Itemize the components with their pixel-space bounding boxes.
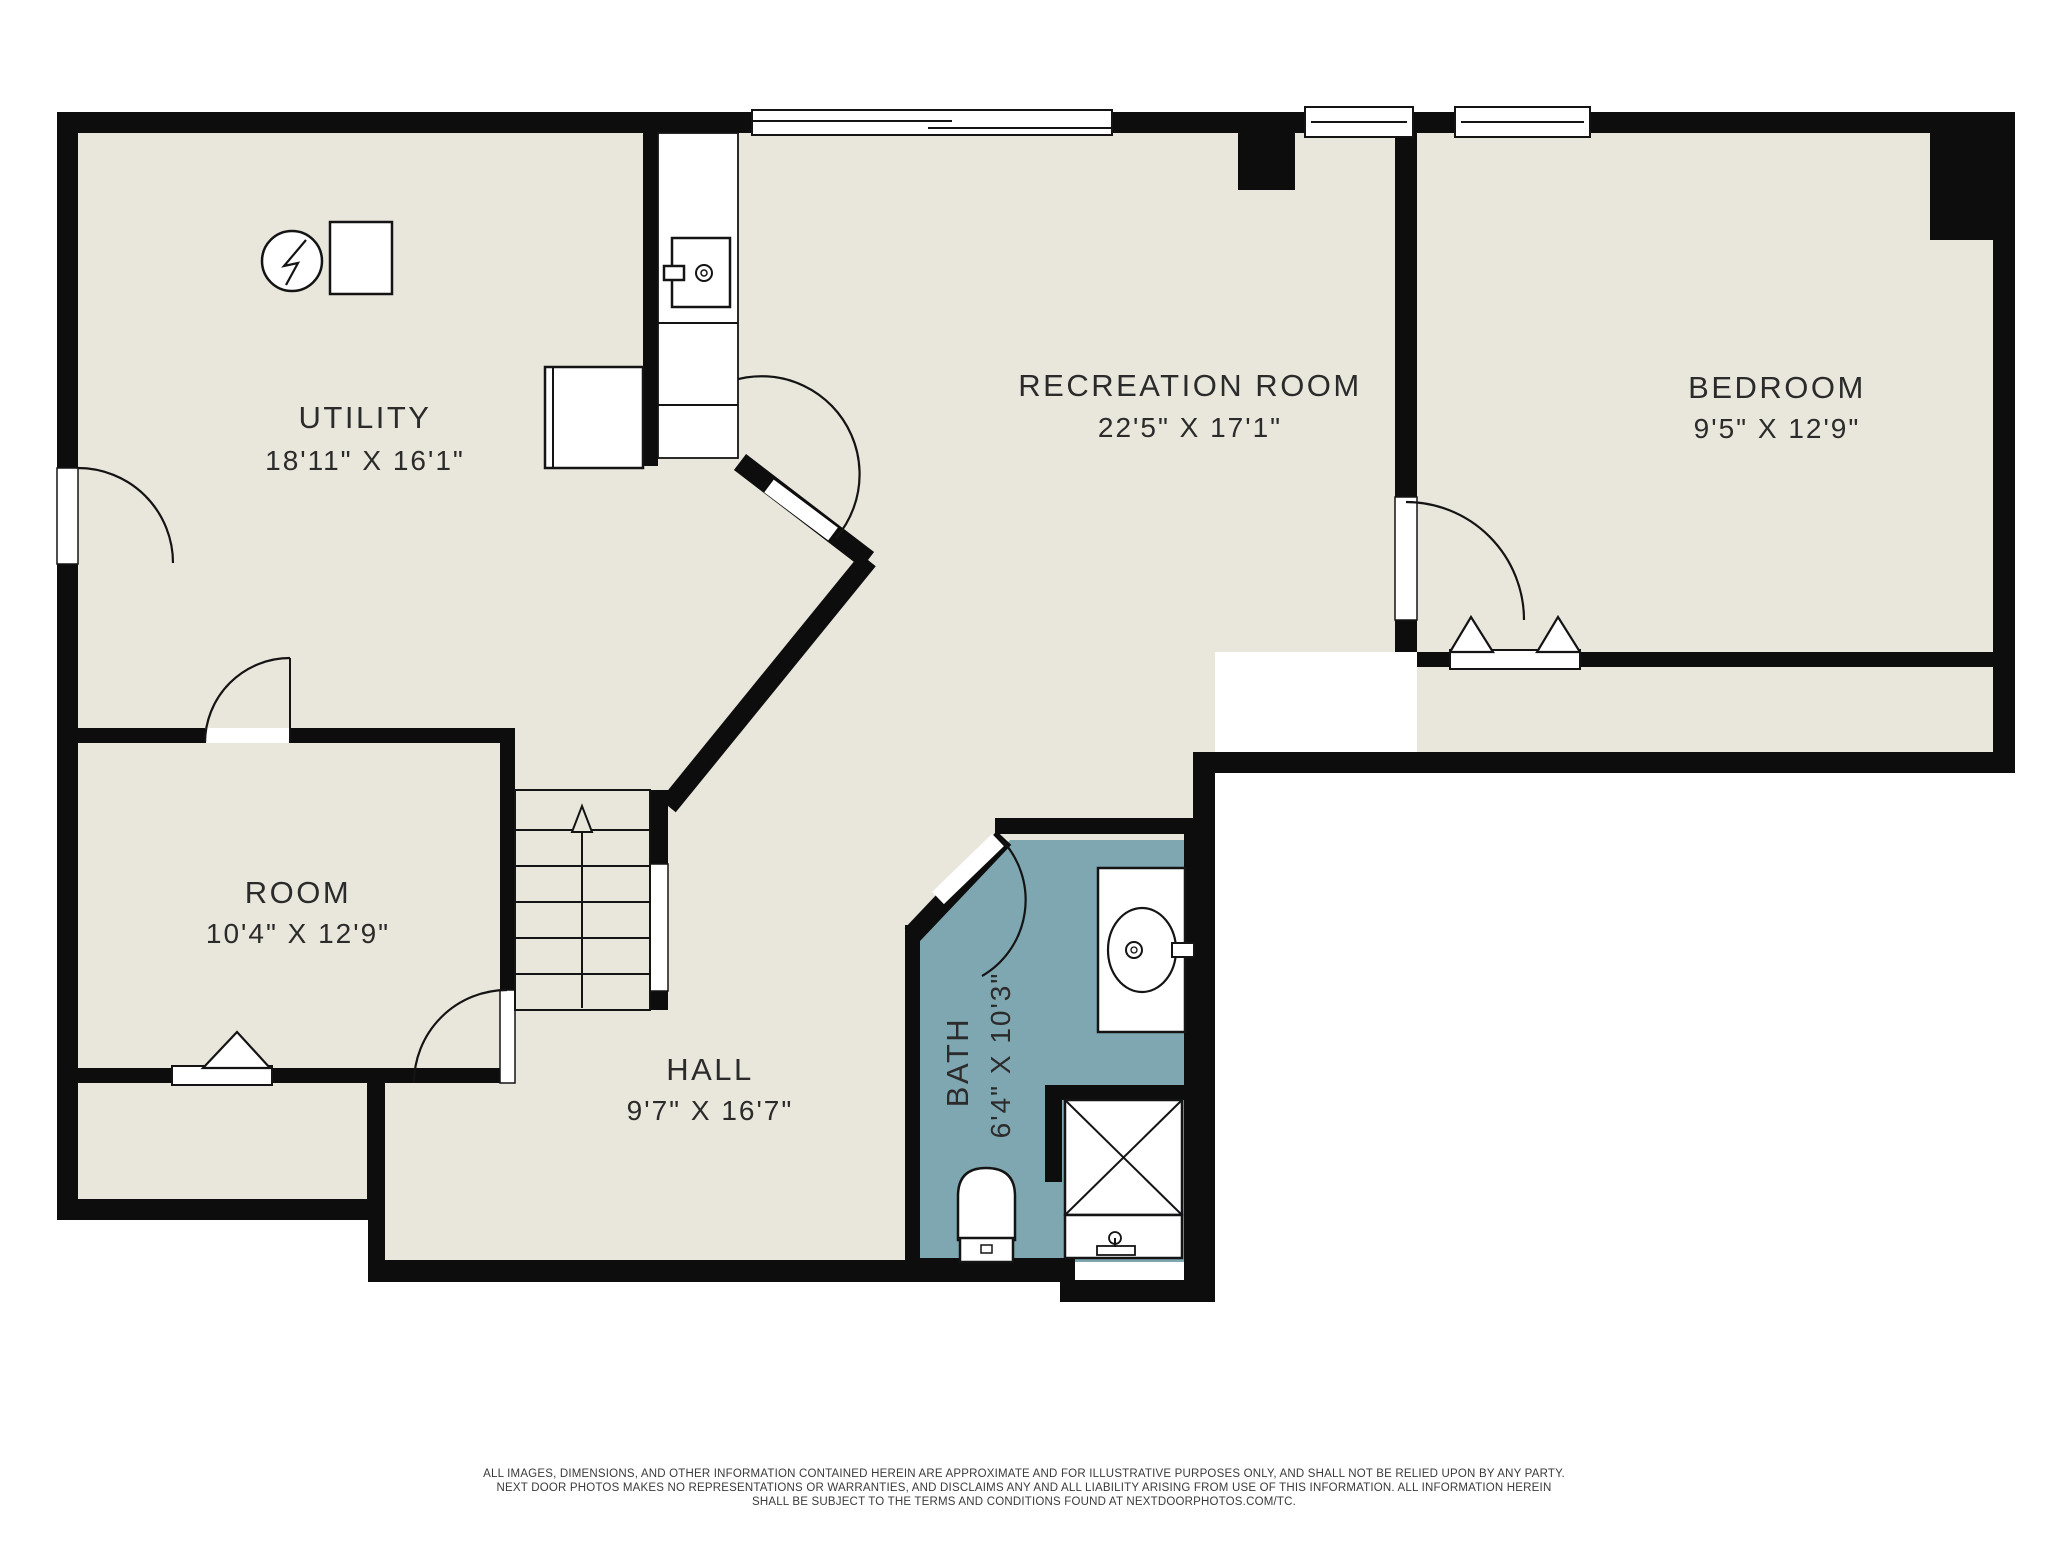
staircase: [515, 790, 650, 1010]
floor-bottom-left-strip: [78, 1083, 367, 1200]
bedroom-dims: 9'5" X 12'9": [1694, 413, 1861, 444]
washer-icon: [664, 238, 730, 307]
bedroom-top-window-icon: [1455, 107, 1590, 137]
disclaimer-line-2: NEXT DOOR PHOTOS MAKES NO REPRESENTATION…: [497, 1482, 1552, 1494]
stair-rail: [650, 864, 668, 991]
room-dims: 10'4" X 12'9": [206, 918, 390, 949]
bath-label: BATH: [940, 1017, 975, 1107]
bath-dims: 6'4" X 10'3": [985, 972, 1016, 1139]
furnace-icon: [330, 222, 392, 294]
shower-icon: [1065, 1100, 1182, 1215]
recreation-dims: 22'5" X 17'1": [1098, 412, 1282, 443]
water-heater-icon: [262, 231, 322, 291]
floor-areas: [78, 133, 1993, 1262]
disclaimer-line-3: SHALL BE SUBJECT TO THE TERMS AND CONDIT…: [752, 1496, 1296, 1508]
hall-label: HALL: [666, 1052, 754, 1087]
bath-sink-icon: [1065, 1215, 1182, 1258]
utility-dims: 18'11" X 16'1": [265, 445, 465, 476]
floor-plan: UTILITY 18'11" X 16'1" RECREATION ROOM 2…: [0, 0, 2048, 1536]
room-label: ROOM: [245, 875, 351, 910]
sliding-door-window-icon: [752, 110, 1112, 135]
disclaimer: ALL IMAGES, DIMENSIONS, AND OTHER INFORM…: [483, 1468, 1565, 1508]
bedroom-label: BEDROOM: [1688, 370, 1866, 405]
vanity-sink-icon: [1098, 868, 1194, 1032]
recreation-window-icon: [1305, 107, 1413, 137]
laundry-column: [658, 133, 738, 458]
toilet-icon: [958, 1168, 1015, 1262]
utility-label: UTILITY: [299, 400, 432, 435]
utility-counter-icon: [545, 367, 643, 468]
recreation-label: RECREATION ROOM: [1018, 368, 1362, 403]
hall-dims: 9'7" X 16'7": [627, 1095, 794, 1126]
disclaimer-line-1: ALL IMAGES, DIMENSIONS, AND OTHER INFORM…: [483, 1468, 1565, 1480]
